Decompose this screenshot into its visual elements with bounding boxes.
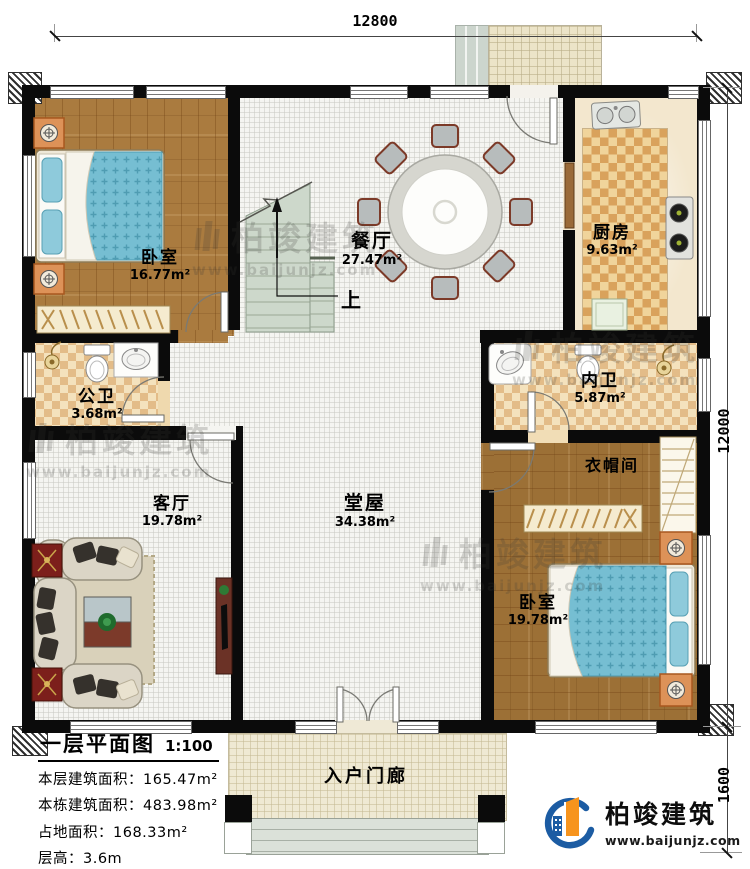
door-leaves [122, 98, 574, 722]
room-label-living: 客厅 19.78m² [112, 489, 232, 529]
dimension-line-right [727, 88, 728, 853]
info-row: 占地面积：168.33m² [38, 821, 270, 842]
plan-info-block: 一层平面图 1:100 本层建筑面积：165.47m² 本栋建筑面积：483.9… [38, 728, 270, 868]
nightstand [660, 674, 692, 706]
brand-logo-icon [540, 792, 596, 850]
bathroom-sink [114, 343, 158, 377]
room-label-hall: 堂屋 34.38m² [305, 488, 425, 530]
room-label-bedroom1: 卧室 16.77m² [100, 243, 220, 283]
side-table [32, 544, 62, 577]
room-label-ensuite-bath: 内卫 5.87m² [540, 366, 660, 406]
dimension-top: 12800 [330, 12, 420, 30]
side-table [32, 668, 62, 701]
extension-line [703, 726, 741, 727]
info-row: 本层建筑面积：165.47m² [38, 768, 270, 789]
room-label-cloakroom: 衣帽间 [552, 452, 672, 476]
tv-cabinet [216, 578, 232, 674]
extension-line [703, 87, 741, 88]
room-label-dining: 餐厅 27.47m² [312, 226, 432, 268]
plan-title: 一层平面图 [40, 728, 155, 758]
room-label-public-bath: 公卫 3.68m² [37, 382, 157, 422]
nightstand [34, 118, 64, 148]
plan-title-row: 一层平面图 1:100 [38, 728, 219, 762]
kitchen-sink [591, 101, 640, 129]
toilet [84, 345, 110, 382]
plan-scale: 1:100 [165, 737, 213, 755]
wardrobe [37, 306, 170, 333]
brand-website: www.baijunjz.com [605, 833, 741, 848]
cloakroom-rack [524, 505, 642, 532]
floor-plan-canvas: 卧室 16.77m² 餐厅 27.47m² 厨房 9.63m² 公卫 3.68m… [0, 0, 750, 869]
nightstand [34, 264, 64, 294]
extension-line [700, 852, 742, 853]
nightstand [660, 532, 692, 564]
bathroom-sink [489, 344, 531, 384]
brand-name: 柏竣建筑 [605, 795, 741, 831]
coffee-table [84, 597, 131, 647]
kitchen-appliance [592, 299, 627, 330]
info-row: 本栋建筑面积：483.98m² [38, 794, 270, 815]
dining-table-set [358, 125, 532, 299]
dimension-line-top [55, 36, 697, 37]
room-label-porch: 入户门廊 [306, 762, 426, 788]
dimension-right: 12000 [715, 401, 733, 461]
brand-logo: 柏竣建筑 www.baijunjz.com [540, 792, 741, 850]
info-row: 层高：3.6m [38, 847, 270, 868]
room-label-bedroom2: 卧室 19.78m² [478, 588, 598, 628]
room-label-kitchen: 厨房 9.63m² [552, 218, 672, 258]
shower-head [45, 342, 61, 369]
stairs-up-label: 上 [341, 284, 361, 313]
